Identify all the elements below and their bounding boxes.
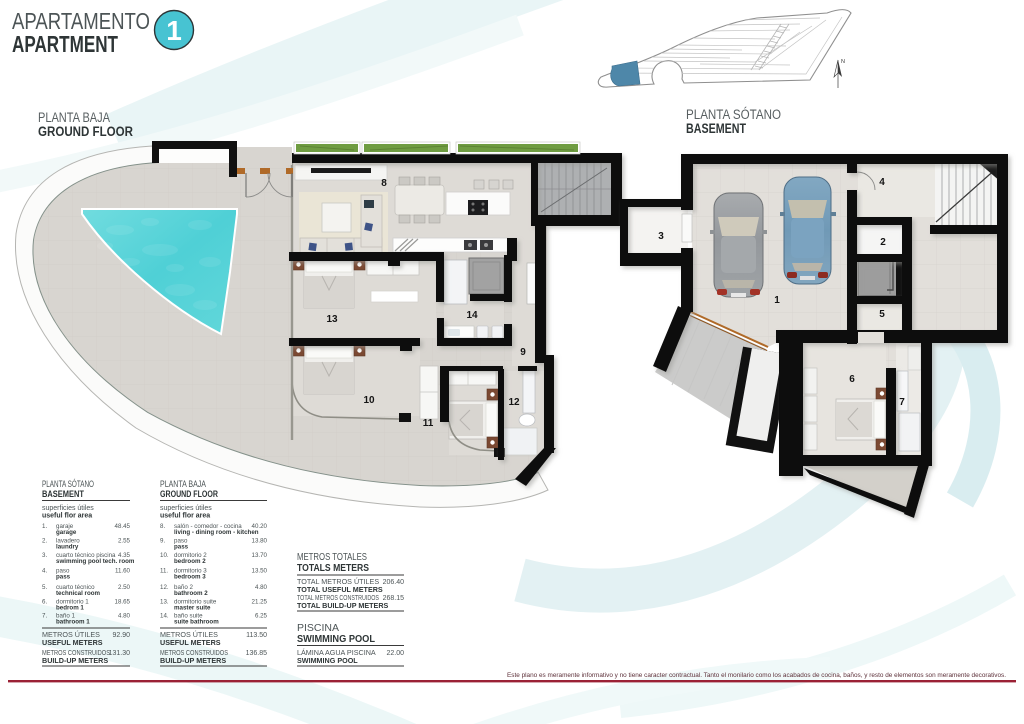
svg-text:14.: 14.: [160, 613, 169, 620]
svg-text:swimming pool tech. room: swimming pool tech. room: [56, 558, 135, 565]
svg-text:8: 8: [381, 178, 387, 189]
svg-text:GROUND FLOOR: GROUND FLOOR: [160, 489, 218, 500]
svg-text:bathroom 1: bathroom 1: [56, 619, 90, 626]
svg-text:pass: pass: [174, 544, 189, 551]
svg-text:4: 4: [879, 177, 885, 188]
svg-text:3: 3: [658, 231, 664, 242]
svg-text:12.: 12.: [160, 584, 169, 591]
svg-text:2.55: 2.55: [118, 538, 131, 545]
svg-text:13.50: 13.50: [252, 568, 268, 575]
svg-text:6.25: 6.25: [255, 613, 268, 620]
svg-text:206.40: 206.40: [383, 579, 405, 586]
svg-text:12: 12: [508, 397, 520, 408]
svg-text:4.80: 4.80: [255, 584, 268, 591]
svg-text:10: 10: [363, 395, 375, 406]
svg-text:21.25: 21.25: [252, 599, 268, 606]
svg-text:6: 6: [849, 374, 855, 385]
svg-text:11.: 11.: [160, 568, 168, 575]
svg-text:technical room: technical room: [56, 590, 101, 597]
svg-text:5.: 5.: [42, 584, 47, 591]
svg-text:3.: 3.: [42, 552, 47, 559]
svg-text:bedroom 2: bedroom 2: [174, 558, 206, 565]
svg-text:superficies útiles: superficies útiles: [42, 505, 94, 512]
svg-text:USEFUL METERS: USEFUL METERS: [160, 638, 221, 647]
svg-text:5: 5: [879, 309, 885, 320]
svg-text:40.20: 40.20: [252, 523, 268, 530]
svg-text:BASEMENT: BASEMENT: [42, 489, 84, 500]
svg-text:1: 1: [166, 15, 182, 46]
svg-text:13: 13: [326, 314, 338, 325]
svg-text:APARTMENT: APARTMENT: [12, 31, 118, 57]
svg-text:113.50: 113.50: [246, 632, 267, 639]
svg-text:4.80: 4.80: [118, 613, 131, 620]
svg-text:1.: 1.: [42, 523, 47, 530]
svg-text:13.70: 13.70: [252, 552, 268, 559]
svg-text:136.85: 136.85: [246, 650, 268, 657]
svg-text:11: 11: [423, 418, 434, 429]
svg-text:13.80: 13.80: [252, 538, 268, 545]
svg-text:TOTAL BUILD-UP METERS: TOTAL BUILD-UP METERS: [297, 601, 389, 610]
svg-text:BUILD-UP METERS: BUILD-UP METERS: [42, 656, 108, 665]
svg-text:268.15: 268.15: [383, 595, 405, 602]
svg-text:14: 14: [466, 310, 478, 321]
svg-text:13.: 13.: [160, 599, 169, 606]
svg-text:USEFUL METERS: USEFUL METERS: [42, 638, 103, 647]
svg-text:7: 7: [899, 397, 905, 408]
svg-text:master suite: master suite: [174, 605, 211, 612]
svg-text:SWIMMING POOL: SWIMMING POOL: [297, 633, 376, 645]
svg-text:9.: 9.: [160, 538, 165, 545]
svg-text:10.: 10.: [160, 552, 169, 559]
svg-text:garage: garage: [56, 529, 77, 536]
svg-text:18.65: 18.65: [115, 599, 131, 606]
svg-text:PLANTA SÓTANO: PLANTA SÓTANO: [686, 107, 781, 122]
svg-text:2.: 2.: [42, 538, 47, 545]
svg-text:bedrom 1: bedrom 1: [56, 605, 84, 612]
svg-text:2.50: 2.50: [118, 584, 131, 591]
svg-text:suite bathroom: suite bathroom: [174, 619, 219, 626]
svg-text:7.: 7.: [42, 613, 47, 620]
svg-text:48.45: 48.45: [115, 523, 131, 530]
svg-text:bedroom 3: bedroom 3: [174, 574, 206, 581]
svg-text:8.: 8.: [160, 523, 165, 530]
svg-text:useful flor area: useful flor area: [42, 513, 92, 520]
svg-text:Este plano es meramente inform: Este plano es meramente informativo y no…: [507, 672, 1006, 679]
svg-text:N: N: [841, 59, 845, 65]
svg-text:bathroom 2: bathroom 2: [174, 590, 208, 597]
svg-text:11.60: 11.60: [115, 568, 131, 575]
svg-text:131.30: 131.30: [109, 650, 131, 657]
svg-text:pass: pass: [56, 574, 71, 581]
svg-text:PLANTA BAJA: PLANTA BAJA: [38, 110, 110, 125]
svg-text:BASEMENT: BASEMENT: [686, 121, 747, 136]
svg-text:9: 9: [520, 347, 526, 358]
svg-text:laundry: laundry: [56, 544, 79, 551]
svg-text:living - dining room - kitchen: living - dining room - kitchen: [174, 529, 259, 536]
svg-text:GROUND FLOOR: GROUND FLOOR: [38, 124, 133, 139]
svg-text:92.90: 92.90: [112, 632, 130, 639]
svg-text:6.: 6.: [42, 599, 47, 606]
svg-text:superficies útiles: superficies útiles: [160, 505, 212, 512]
svg-text:4.35: 4.35: [118, 552, 131, 559]
svg-text:2: 2: [880, 237, 886, 248]
svg-text:useful flor area: useful flor area: [160, 513, 210, 520]
svg-text:1: 1: [774, 295, 780, 306]
svg-text:22.00: 22.00: [386, 650, 404, 657]
svg-text:TOTALS METERS: TOTALS METERS: [297, 562, 369, 574]
svg-text:BUILD-UP METERS: BUILD-UP METERS: [160, 656, 226, 665]
svg-text:4.: 4.: [42, 568, 47, 575]
svg-text:SWIMMING POOL: SWIMMING POOL: [297, 656, 358, 665]
